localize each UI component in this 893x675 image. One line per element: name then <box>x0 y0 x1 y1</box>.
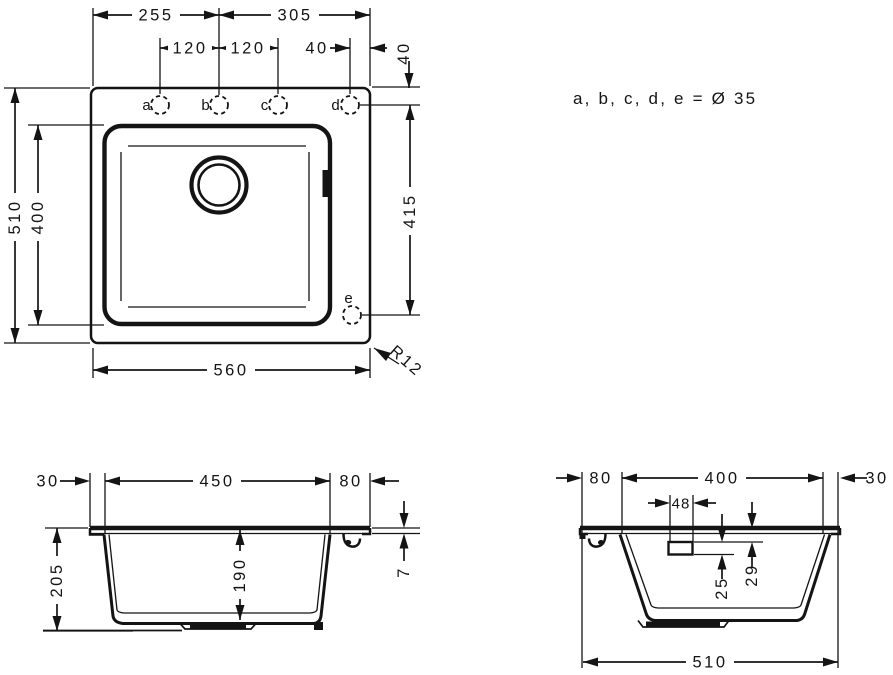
dim-120-left-label: 120 <box>172 40 207 58</box>
drain-inner-circle <box>199 165 240 206</box>
front-overflow-hook <box>344 534 361 547</box>
front-overflow-hook-detail <box>345 540 351 545</box>
dim-120-right-label: 120 <box>230 40 265 58</box>
side-drain-bar <box>646 622 720 628</box>
plan-dimension-lines <box>15 15 410 370</box>
side-overflow-hook-detail <box>598 540 604 545</box>
side-dim-80-label: 80 <box>589 470 612 488</box>
hole-a-label: a <box>142 97 151 114</box>
hole-a <box>151 96 169 114</box>
overflow-slot-section <box>669 542 693 555</box>
hole-diameter-note: a, b, c, d, e = Ø 35 <box>573 89 757 108</box>
front-basin-inner <box>109 535 325 614</box>
front-dim-7-label: 7 <box>395 566 413 578</box>
front-dimension-lines <box>57 481 404 631</box>
side-dim-48-label: 48 <box>672 496 691 513</box>
basin-floor-edge <box>121 146 309 307</box>
side-dim-400-label: 400 <box>704 470 739 488</box>
front-basin-outer <box>104 535 330 624</box>
dim-560-label: 560 <box>213 362 248 380</box>
dim-40-side-label: 40 <box>395 41 413 64</box>
side-dim-25-label: 25 <box>713 576 731 599</box>
front-dim-80-label: 80 <box>339 473 362 491</box>
front-dim-450-label: 450 <box>199 473 234 491</box>
dim-305-label: 305 <box>277 7 312 25</box>
front-section-profile <box>43 528 370 631</box>
front-dim-205-label: 205 <box>48 562 66 597</box>
side-dim-510-label: 510 <box>692 654 727 672</box>
corner-radius-label: R12 <box>386 342 426 380</box>
drawing-svg: 255 305 120 120 40 40 510 400 415 560 R1… <box>0 0 893 675</box>
front-dim-190-label: 190 <box>231 557 249 592</box>
side-section-profile <box>580 528 841 627</box>
dim-415-label: 415 <box>401 193 419 228</box>
side-dim-30-label: 30 <box>865 470 888 488</box>
hole-d-label: d <box>331 97 340 114</box>
hole-c <box>269 96 287 114</box>
hole-e-label: e <box>344 290 353 307</box>
plan-arrowheads <box>11 11 415 375</box>
side-label-backgrounds <box>686 469 746 671</box>
front-drain-fitting <box>314 622 323 630</box>
hole-b-label: b <box>201 97 210 114</box>
hole-c-label: c <box>261 97 270 114</box>
hole-d <box>341 96 359 114</box>
side-section-view: 80 400 30 48 25 29 510 <box>556 469 889 672</box>
side-dim-29-label: 29 <box>743 563 761 586</box>
side-extension-lines <box>582 472 838 668</box>
plan-view: 255 305 120 120 40 40 510 400 415 560 R1… <box>4 6 426 380</box>
dim-40-top-label: 40 <box>305 40 328 58</box>
front-section-view: 30 450 80 205 190 7 <box>36 472 420 631</box>
overflow-slot-plan <box>323 170 331 197</box>
front-dim-30-label: 30 <box>36 473 59 491</box>
hole-e <box>343 306 361 324</box>
dim-510-label: 510 <box>6 199 24 234</box>
front-label-backgrounds <box>48 472 249 604</box>
front-drain-bar <box>190 624 246 629</box>
hole-b <box>210 96 228 114</box>
dim-400-label: 400 <box>29 199 47 234</box>
dim-255-label: 255 <box>138 7 173 25</box>
side-dimension-lines <box>556 478 867 662</box>
technical-drawing-sink: 255 305 120 120 40 40 510 400 415 560 R1… <box>0 0 893 675</box>
side-overflow-hook <box>589 534 606 547</box>
